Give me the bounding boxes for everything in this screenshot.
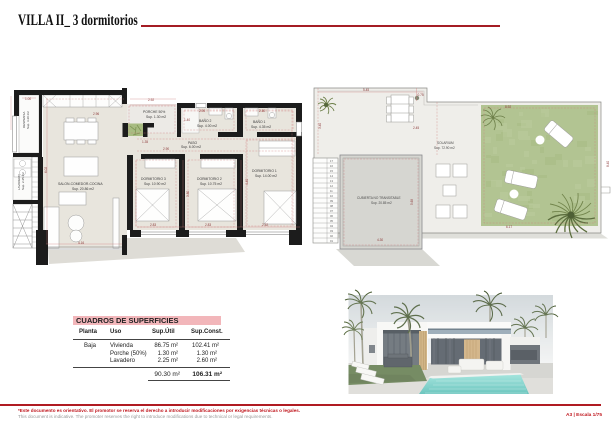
svg-text:DORMITORIO 3: DORMITORIO 3 [141,177,166,181]
svg-text:6.17: 6.17 [506,225,512,229]
svg-text:2.92: 2.92 [148,98,154,102]
svg-text:5.45: 5.45 [363,88,369,92]
svg-text:6.02: 6.02 [44,167,48,173]
svg-text:Sup. 20.86 m2: Sup. 20.86 m2 [72,187,94,191]
svg-text:2.90: 2.90 [199,109,205,113]
svg-text:Sup. 1.30 m2: Sup. 1.30 m2 [146,115,166,119]
svg-text:2.45: 2.45 [413,126,419,130]
svg-text:DORMITORIO 2: DORMITORIO 2 [197,177,222,181]
svg-text:1.35: 1.35 [142,140,148,144]
svg-text:8.40: 8.40 [606,161,610,167]
svg-text:8.92: 8.92 [505,105,511,109]
svg-text:3.80: 3.80 [186,191,190,197]
svg-text:Sup. 20.85 m2: Sup. 20.85 m2 [371,201,392,205]
svg-text:SALON-COMEDOR-COCINA: SALON-COMEDOR-COCINA [58,182,103,186]
svg-text:2.83: 2.83 [150,223,156,227]
svg-text:Sup. 14.00 m2: Sup. 14.00 m2 [255,174,277,178]
svg-text:SOLARIUM: SOLARIUM [437,141,454,145]
svg-text:2.90: 2.90 [163,147,169,151]
svg-text:Sup. 72.90 m2: Sup. 72.90 m2 [434,146,455,150]
svg-text:5.69: 5.69 [410,199,414,205]
svg-text:3.40: 3.40 [318,123,322,129]
svg-text:4.16: 4.16 [78,241,84,245]
svg-text:DORMITORIO 1: DORMITORIO 1 [252,169,277,173]
svg-text:4.30: 4.30 [377,238,383,242]
svg-text:4.40: 4.40 [245,179,249,185]
svg-text:1.00: 1.00 [25,97,31,101]
svg-text:2.96: 2.96 [93,112,99,116]
svg-text:Sup. 4.00 m2: Sup. 4.00 m2 [197,124,217,128]
svg-text:BAÑO 2: BAÑO 2 [199,118,212,123]
svg-text:2.50: 2.50 [259,109,265,113]
svg-text:Sup. 4.35 m2: Sup. 4.35 m2 [251,125,271,129]
svg-text:Sup. 3.20 m2: Sup. 3.20 m2 [26,111,30,129]
svg-text:Sup. 6.00 m2: Sup. 6.00 m2 [181,145,201,149]
svg-text:1.40: 1.40 [184,118,190,122]
svg-text:0.75: 0.75 [418,93,424,97]
svg-text:Sup. 10.90 m2: Sup. 10.90 m2 [144,182,166,186]
svg-text:PORCHE 50%: PORCHE 50% [143,110,165,114]
svg-text:BAÑO 1: BAÑO 1 [253,119,266,124]
svg-text:2.52: 2.52 [262,223,268,227]
svg-text:CUBIERTA NO TRANSITABLE: CUBIERTA NO TRANSITABLE [357,196,401,200]
svg-text:2.83: 2.83 [205,223,211,227]
svg-text:Sup. 10.75 m2: Sup. 10.75 m2 [200,182,222,186]
svg-text:Sup. 2.25 m2: Sup. 2.25 m2 [21,172,25,190]
